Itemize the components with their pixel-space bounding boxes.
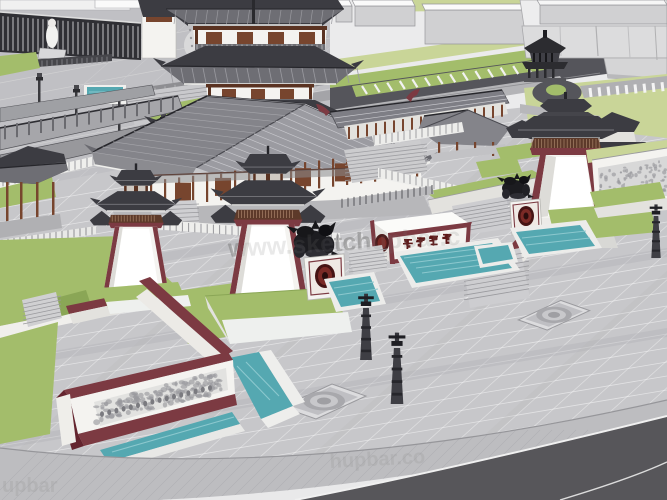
svg-text:upbar: upbar — [2, 475, 58, 497]
